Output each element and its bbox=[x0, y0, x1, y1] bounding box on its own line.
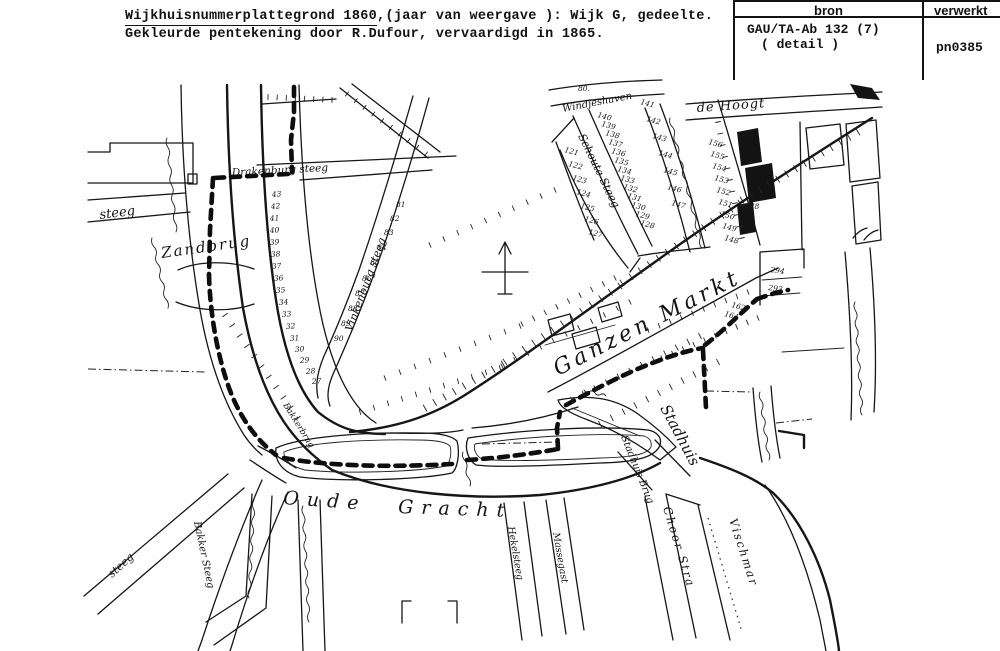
hatch-tick bbox=[512, 206, 514, 211]
neude-field-boundary bbox=[350, 118, 872, 432]
hatch-tick bbox=[387, 401, 388, 406]
house-number: 153 bbox=[713, 173, 729, 185]
house-number: 34 bbox=[279, 297, 289, 307]
hatch-tick bbox=[579, 293, 581, 298]
hatch-tick bbox=[540, 194, 542, 199]
hatch-tick bbox=[492, 367, 496, 373]
hatch-tick bbox=[429, 358, 431, 363]
hatch-tick bbox=[539, 345, 541, 349]
hatch-tick bbox=[675, 345, 678, 350]
hatch-tick bbox=[629, 300, 631, 304]
hatch-tick bbox=[401, 396, 402, 401]
street-label: Windjeshaven bbox=[561, 91, 633, 115]
hatch-tick bbox=[485, 370, 486, 375]
house-number: 39 bbox=[270, 237, 280, 247]
hatch-tick bbox=[237, 334, 242, 337]
hatch-tick bbox=[554, 188, 556, 193]
hatch-tick bbox=[522, 346, 526, 352]
house-number: 121 bbox=[563, 145, 579, 157]
house-number: 86 bbox=[362, 274, 372, 283]
north-arrow-icon bbox=[482, 242, 528, 294]
house-number: 43 bbox=[271, 189, 282, 199]
archive-map-sheet: Wijkhuisnummerplattegrond 1860,(jaar van… bbox=[0, 0, 1000, 651]
hatch-tick bbox=[504, 329, 506, 334]
street-label: Gracht bbox=[398, 496, 513, 522]
street-label: Bakker Steeg bbox=[191, 519, 216, 589]
hatch-tick bbox=[740, 238, 745, 239]
handwriting-squiggle bbox=[759, 392, 770, 460]
hatch-tick bbox=[830, 145, 834, 151]
hatch-tick bbox=[847, 134, 851, 140]
hatch-tick bbox=[718, 133, 723, 134]
hatch-tick bbox=[602, 282, 604, 287]
hatch-tick bbox=[693, 372, 696, 377]
hatch-tick bbox=[532, 340, 536, 346]
hatch-tick bbox=[414, 364, 416, 369]
street-label: de Hoogt bbox=[696, 96, 766, 116]
house-number: 144 bbox=[657, 148, 673, 160]
hatch-tick bbox=[471, 374, 472, 379]
hatch-tick bbox=[567, 299, 569, 303]
house-number: 152 bbox=[715, 185, 731, 197]
house-number: 155 bbox=[709, 149, 725, 161]
hatch-tick bbox=[399, 370, 401, 375]
hatch-tick bbox=[457, 231, 459, 236]
hatch-tick bbox=[425, 152, 428, 156]
street-label: Choor Stra bbox=[660, 505, 698, 589]
house-number: 143 bbox=[651, 131, 667, 143]
handwriting-squiggle bbox=[854, 302, 863, 415]
hatch-tick bbox=[499, 366, 500, 371]
hatch-tick bbox=[462, 383, 465, 389]
hatch-tick bbox=[747, 290, 749, 295]
hatch-tick bbox=[513, 353, 517, 359]
hatch-tick bbox=[433, 400, 437, 406]
hatch-tick bbox=[669, 384, 672, 389]
hatch-tick bbox=[544, 310, 546, 314]
house-number: 156 bbox=[707, 137, 723, 149]
hatch-tick bbox=[223, 313, 228, 316]
street-label: Hekelsteeg bbox=[505, 525, 525, 581]
hatch-tick bbox=[533, 316, 535, 321]
hatch-tick bbox=[699, 333, 702, 338]
hatch-tick bbox=[474, 341, 476, 346]
house-number: 146 bbox=[666, 182, 682, 194]
map-canvas: steegZandbrugDrakenburg steegVinkenburg … bbox=[0, 0, 1000, 651]
house-number: 89 bbox=[341, 319, 351, 328]
house-number: 40 bbox=[269, 225, 280, 235]
hatch-tick bbox=[610, 415, 613, 420]
ganzenmarkt-area bbox=[545, 249, 844, 392]
handwriting-squiggle bbox=[302, 506, 310, 622]
hatch-tick bbox=[281, 396, 286, 399]
house-number: 38 bbox=[271, 249, 281, 259]
hatch-tick bbox=[603, 313, 605, 317]
hatch-tick bbox=[423, 405, 426, 411]
hatch-tick bbox=[634, 403, 637, 408]
hatch-tick bbox=[561, 321, 565, 327]
house-number: 124 bbox=[575, 187, 591, 199]
street-label: steeg bbox=[99, 204, 136, 223]
house-number: 28 bbox=[305, 366, 316, 376]
house-number: 127 bbox=[587, 227, 603, 239]
hatch-tick bbox=[489, 335, 491, 340]
hatch-tick bbox=[664, 351, 667, 356]
house-number: 35 bbox=[276, 285, 286, 295]
house-number: 149 bbox=[721, 221, 737, 233]
wharf-islands bbox=[276, 428, 661, 480]
hatch-tick bbox=[736, 294, 738, 299]
house-number: 27 bbox=[311, 376, 322, 386]
hatch-tick bbox=[457, 379, 458, 384]
hatch-tick bbox=[459, 347, 461, 352]
house-number: 147 bbox=[670, 198, 686, 210]
hatch-tick bbox=[503, 359, 507, 365]
hatch-tick bbox=[373, 405, 374, 410]
hatch-tick bbox=[498, 212, 500, 217]
hatch-tick bbox=[453, 389, 457, 395]
street-label: Drakenburg steeg bbox=[231, 162, 329, 179]
house-number: 123 bbox=[571, 173, 587, 185]
handwriting-squiggle bbox=[166, 138, 177, 232]
street-label: Massegast bbox=[550, 531, 570, 584]
hatch-tick bbox=[681, 378, 684, 383]
hatch-tick bbox=[415, 392, 416, 397]
house-number: 151 bbox=[717, 197, 733, 209]
hatch-tick bbox=[736, 325, 738, 330]
hatch-tick bbox=[443, 237, 445, 242]
hatch-tick bbox=[526, 200, 528, 205]
house-number: 83 bbox=[384, 228, 394, 237]
hatch-tick bbox=[717, 359, 720, 364]
hatch-tick bbox=[704, 338, 706, 343]
house-number: 32 bbox=[286, 321, 296, 331]
hatch-tick bbox=[725, 298, 727, 303]
hatch-tick bbox=[556, 305, 558, 310]
hatch-tick bbox=[658, 390, 661, 395]
hatch-tick bbox=[274, 385, 279, 388]
house-number: 154 bbox=[711, 161, 727, 173]
street-minrebroederstraat bbox=[753, 228, 878, 462]
house-number: 145 bbox=[662, 165, 678, 177]
house-number: 81 bbox=[396, 200, 406, 209]
hatch-tick bbox=[471, 224, 473, 229]
house-number: 42 bbox=[270, 201, 281, 211]
hatch-tick bbox=[578, 325, 580, 329]
hatch-tick bbox=[616, 306, 618, 310]
house-number: 33 bbox=[282, 309, 292, 319]
house-number: 84 bbox=[377, 243, 387, 252]
house-number: 80. bbox=[578, 84, 590, 93]
hatch-tick bbox=[856, 129, 860, 135]
house-number: 90 bbox=[334, 334, 344, 343]
hatch-tick bbox=[716, 122, 721, 123]
hatch-tick bbox=[591, 319, 593, 323]
hatch-tick bbox=[746, 320, 748, 325]
hatch-tick bbox=[443, 394, 446, 400]
hatch-tick bbox=[541, 334, 545, 340]
hatch-tick bbox=[687, 339, 690, 344]
hatch-tick bbox=[444, 353, 446, 358]
house-number: 85 bbox=[370, 258, 380, 267]
house-number: 29 bbox=[299, 355, 310, 365]
hatch-tick bbox=[591, 287, 593, 291]
house-number: 87 bbox=[355, 289, 365, 298]
hatch-tick bbox=[614, 276, 616, 280]
house-number: 88 bbox=[348, 304, 358, 313]
house-number: 294 bbox=[769, 265, 786, 276]
house-number: 37 bbox=[272, 261, 282, 271]
hatch-tick bbox=[622, 409, 625, 414]
numbered-route-dashed bbox=[209, 87, 788, 466]
hatch-tick bbox=[552, 338, 554, 342]
house-number: 293 bbox=[767, 283, 784, 294]
house-number: 278 bbox=[744, 202, 760, 211]
house-number: 30 bbox=[295, 344, 305, 354]
hatch-tick bbox=[485, 218, 487, 223]
house-number: 142 bbox=[645, 114, 661, 126]
house-number: 41 bbox=[269, 213, 280, 223]
street-label: Oude bbox=[283, 487, 368, 515]
house-number: 122 bbox=[567, 159, 583, 171]
house-number: 164 bbox=[723, 309, 739, 321]
hatch-tick bbox=[245, 344, 250, 347]
house-number: 126 bbox=[583, 214, 599, 226]
house-number: 128 bbox=[639, 218, 655, 230]
house-number: 141 bbox=[639, 97, 655, 109]
street-label: Vischmar bbox=[726, 517, 761, 589]
house-number: 36 bbox=[274, 273, 284, 283]
hatch-tick bbox=[429, 243, 431, 248]
hatch-tick bbox=[429, 388, 430, 393]
house-number: 148 bbox=[723, 233, 739, 245]
hatch-tick bbox=[757, 316, 759, 321]
hatch-tick bbox=[519, 324, 521, 329]
hatch-tick bbox=[230, 324, 235, 327]
hatch-tick bbox=[693, 342, 695, 347]
house-number: 82 bbox=[390, 214, 400, 223]
house-number: 150 bbox=[719, 209, 735, 221]
hatch-tick bbox=[521, 322, 523, 326]
hatch-tick bbox=[646, 397, 649, 402]
hatch-tick bbox=[443, 383, 444, 388]
hatch-tick bbox=[266, 375, 271, 378]
hatch-tick bbox=[259, 365, 264, 368]
house-number: 31 bbox=[290, 333, 300, 343]
street-label: Zandbrug bbox=[159, 232, 252, 263]
hatch-tick bbox=[384, 376, 386, 381]
hatch-tick bbox=[482, 372, 485, 378]
